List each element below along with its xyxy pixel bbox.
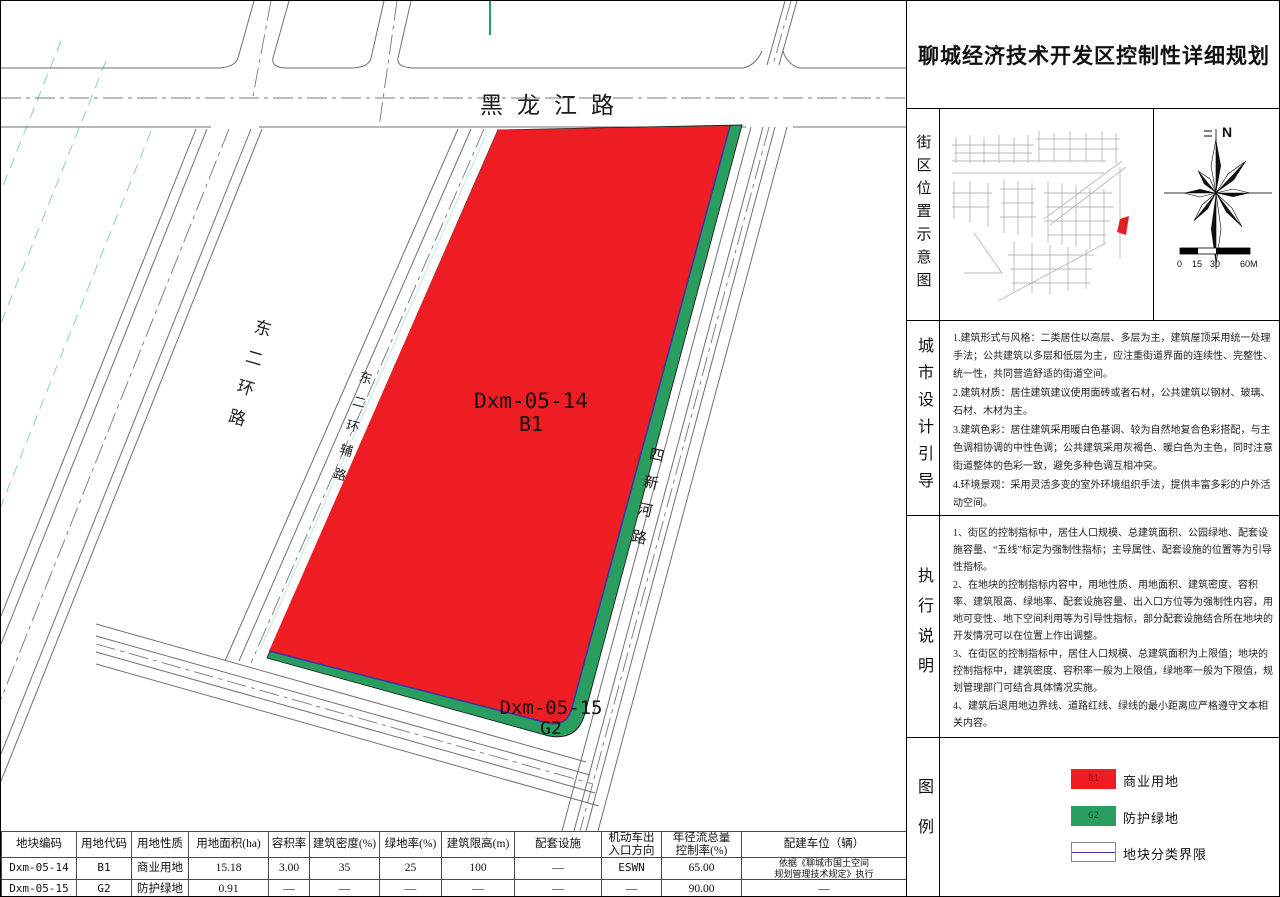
section-location: 街区位置示意图: [907, 109, 1280, 321]
cell-parcel-code: Dxm-05-14: [2, 858, 77, 880]
north-label: N: [1222, 124, 1232, 140]
section-label-design-guidance: 城市设计引导: [907, 321, 940, 515]
parcel-indicator-table: 地块编码 用地代码 用地性质 用地面积(ha) 容积率 建筑密度(%) 绿地率(…: [1, 831, 907, 897]
legend-item-label: 地块分类界限: [1123, 844, 1207, 863]
page-title: 聊城经济技术开发区控制性详细规划: [918, 40, 1270, 70]
commercial-color-swatch: B1: [1071, 769, 1116, 789]
cell-facilities: —: [515, 880, 602, 897]
design-guidance-body: 1.建筑形式与风格：二类居住以高层、多层为主，建筑屋顶采用统一处理手法；公共建筑…: [940, 321, 1280, 515]
scale-tick: 15: [1192, 259, 1202, 269]
legend-item-commercial: B1 商业用地: [940, 769, 1280, 791]
location-body: N 0 15 30 60M: [940, 109, 1280, 320]
legend-body: B1 商业用地 G2 防护绿地 地块分类界限: [940, 738, 1280, 897]
parcel-code: Dxm-05-14: [431, 389, 631, 413]
parcel-code: Dxm-05-15: [461, 698, 641, 719]
note-item: 1、街区的控制指标中，居住人口规模、总建筑面积、公园绿地、配套设施容量、“五线”…: [953, 525, 1273, 576]
cell-use-code: G2: [77, 880, 132, 897]
title-block: 聊城经济技术开发区控制性详细规划: [907, 1, 1280, 109]
cell-height-limit: —: [442, 880, 515, 897]
col-header: 用地面积(ha): [189, 832, 269, 858]
cell-runoff-rate: 90.00: [662, 880, 742, 897]
col-header: 机动车出 入口方向: [602, 832, 662, 858]
col-header: 配建车位（辆）: [742, 832, 907, 858]
minimap-site-marker: [1117, 216, 1129, 235]
info-panel: 聊城经济技术开发区控制性详细规划 街区位置示意图: [906, 1, 1280, 897]
minimap-drawing: [940, 109, 1153, 319]
cell-entry-direction: —: [602, 880, 662, 897]
cell-entry-direction: ESWN: [602, 858, 662, 880]
note-item: 4、建筑后退用地边界线、道路红线、绿线的最小距离应严格遵守文本相关内容。: [953, 698, 1273, 732]
scale-bar: 0 15 30 60M: [1177, 248, 1258, 269]
section-label-location: 街区位置示意图: [907, 109, 940, 320]
road-label-heilongjiang: 黑龙江路: [480, 86, 628, 120]
cell-use-nature: 商业用地: [132, 858, 189, 880]
guidance-item: 3.建筑色彩：居住建筑采用暖白色基调、较为自然地复合色彩搭配，与主色调相协调的中…: [953, 422, 1273, 476]
cell-use-code: B1: [77, 858, 132, 880]
section-implementation-notes: 执行说明 1、街区的控制指标中，居住人口规模、总建筑面积、公园绿地、配套设施容量…: [907, 516, 1280, 738]
col-header: 建筑限高(m): [442, 832, 515, 858]
cell-far: 3.00: [269, 858, 310, 880]
cell-far: —: [269, 880, 310, 897]
col-header: 用地性质: [132, 832, 189, 858]
section-legend: 图例 B1 商业用地 G2 防护绿地 地块分类界限: [907, 738, 1280, 897]
boundary-line-swatch: [1071, 842, 1116, 862]
col-header: 容积率: [269, 832, 310, 858]
location-minimap: [940, 109, 1154, 320]
planning-map: 黑龙江路 东二环路 东二环辅路 四新河路 Dxm-05-14 B1 Dxm-05…: [1, 1, 906, 831]
table-row: Dxm-05-15 G2 防护绿地 0.91 — — — — — — 90.00…: [2, 880, 907, 897]
note-item: 2、在地块的控制指标内容中，用地性质、用地面积、建筑密度、容积率、建筑限高、绿地…: [953, 577, 1273, 645]
cell-height-limit: 100: [442, 858, 515, 880]
guidance-item: 1.建筑形式与风格：二类居住以高层、多层为主，建筑屋顶采用统一处理手法；公共建筑…: [953, 330, 1273, 384]
green-color-swatch: G2: [1071, 806, 1116, 826]
compass-rose-icon: N 0 15 30 60M: [1154, 109, 1280, 321]
cell-runoff-rate: 65.00: [662, 858, 742, 880]
guidance-item: 4.环境景观：采用灵活多变的室外环境组织手法，提供丰富多彩的户外活动空间。: [953, 477, 1273, 513]
scale-tick: 0: [1177, 259, 1182, 269]
boundary-line-icon: [1072, 852, 1115, 853]
cell-density: 35: [310, 858, 380, 880]
col-header: 用地代码: [77, 832, 132, 858]
col-header: 配套设施: [515, 832, 602, 858]
legend-item-green: G2 防护绿地: [940, 806, 1280, 828]
implementation-notes-body: 1、街区的控制指标中，居住人口规模、总建筑面积、公园绿地、配套设施容量、“五线”…: [940, 516, 1280, 737]
parcel-use-code: B1: [431, 413, 631, 436]
section-label-legend: 图例: [907, 738, 940, 897]
legend-item-label: 商业用地: [1123, 771, 1179, 790]
parcel-use-code: G2: [461, 719, 641, 739]
col-header: 地块编码: [2, 832, 77, 858]
parcel-label-green: Dxm-05-15 G2: [461, 698, 641, 739]
planning-sheet: 黑龙江路 东二环路 东二环辅路 四新河路 Dxm-05-14 B1 Dxm-05…: [0, 0, 1280, 897]
col-header: 建筑密度(%): [310, 832, 380, 858]
cell-green-rate: —: [380, 880, 442, 897]
guidance-item: 2.建筑材质：居住建筑建议使用面砖或者石材，公共建筑以钢材、玻璃、石材、木材为主…: [953, 385, 1273, 421]
legend-item-label: 防护绿地: [1123, 808, 1179, 827]
cell-density: —: [310, 880, 380, 897]
scale-tick: 30: [1210, 259, 1220, 269]
scale-tick: 60M: [1240, 259, 1258, 269]
cell-use-nature: 防护绿地: [132, 880, 189, 897]
cell-parking-note: 依据《聊城市国土空间 规划管理技术规定》执行: [742, 858, 907, 880]
section-label-implementation-notes: 执行说明: [907, 516, 940, 737]
col-header: 年径流总量 控制率(%): [662, 832, 742, 858]
parcel-label-commercial: Dxm-05-14 B1: [431, 389, 631, 436]
cell-green-rate: 25: [380, 858, 442, 880]
cell-area: 0.91: [189, 880, 269, 897]
col-header: 绿地率(%): [380, 832, 442, 858]
note-item: 3、在街区的控制指标中，居住人口规模、总建筑面积为上限值；地块的控制指标中，建筑…: [953, 646, 1273, 697]
cell-area: 15.18: [189, 858, 269, 880]
cell-parcel-code: Dxm-05-15: [2, 880, 77, 897]
cell-parking-note: —: [742, 880, 907, 897]
table-row: Dxm-05-14 B1 商业用地 15.18 3.00 35 25 100 —…: [2, 858, 907, 880]
cell-facilities: —: [515, 858, 602, 880]
section-design-guidance: 城市设计引导 1.建筑形式与风格：二类居住以高层、多层为主，建筑屋顶采用统一处理…: [907, 321, 1280, 516]
table-header-row: 地块编码 用地代码 用地性质 用地面积(ha) 容积率 建筑密度(%) 绿地率(…: [2, 832, 907, 858]
legend-item-boundary: 地块分类界限: [940, 842, 1280, 864]
location-compass-area: N 0 15 30 60M: [1154, 109, 1280, 320]
